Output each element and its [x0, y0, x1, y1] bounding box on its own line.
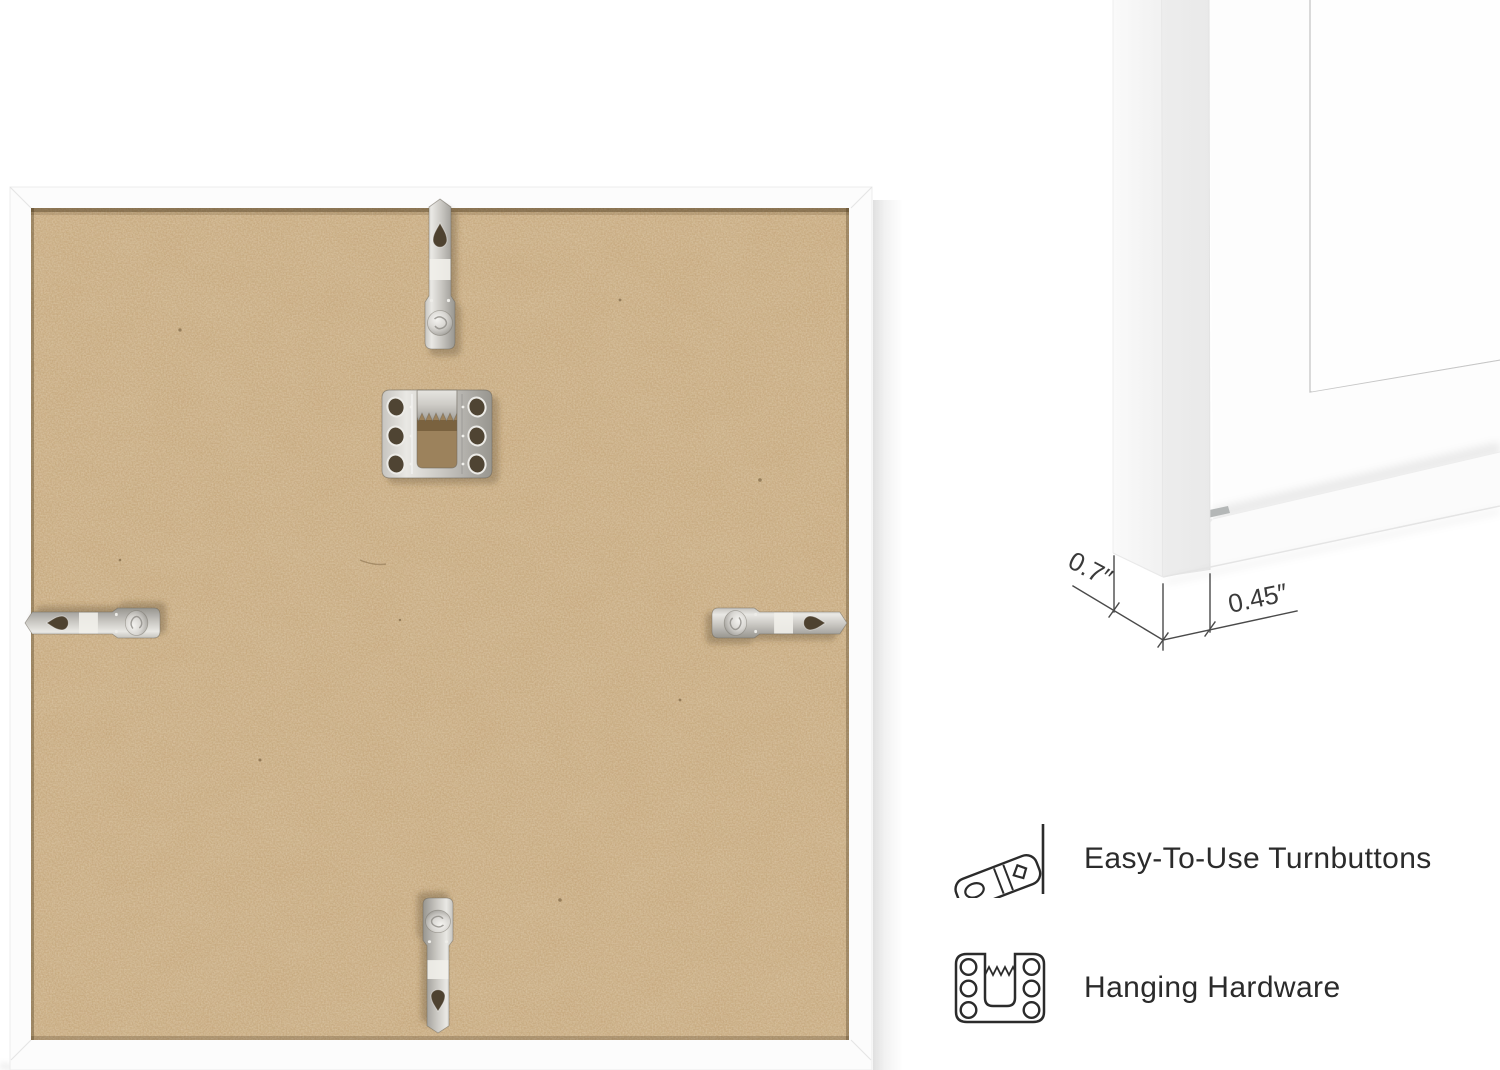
sawtooth-hanger-icon: [952, 950, 1048, 1026]
top-turnbutton: [425, 199, 461, 356]
depth-dimension-label: 0.7″: [1063, 545, 1117, 593]
turnbutton-icon: [946, 820, 1050, 898]
frame-corner-closeup: 0.7″ 0.45″: [1040, 0, 1500, 700]
product-image: 0.7″ 0.45″ Easy-To-Use Turnbuttons: [0, 0, 1500, 1070]
face-dimension-label: 0.45″: [1225, 577, 1290, 619]
bottom-turnbutton: [417, 892, 453, 1033]
left-turnbutton: [25, 602, 166, 638]
frame-cast-shadow: [873, 200, 903, 1070]
frame-back-photo: [0, 0, 910, 1070]
frame-corner-render: [1113, 0, 1500, 582]
feature-hanging-hardware-label: Hanging Hardware: [1084, 971, 1341, 1005]
feature-hanging-hardware: Hanging Hardware: [952, 950, 1341, 1026]
feature-turnbuttons: Easy-To-Use Turnbuttons: [946, 820, 1432, 898]
right-turnbutton: [706, 608, 847, 644]
sawtooth-hanger: [382, 390, 499, 484]
feature-turnbuttons-label: Easy-To-Use Turnbuttons: [1084, 842, 1432, 876]
